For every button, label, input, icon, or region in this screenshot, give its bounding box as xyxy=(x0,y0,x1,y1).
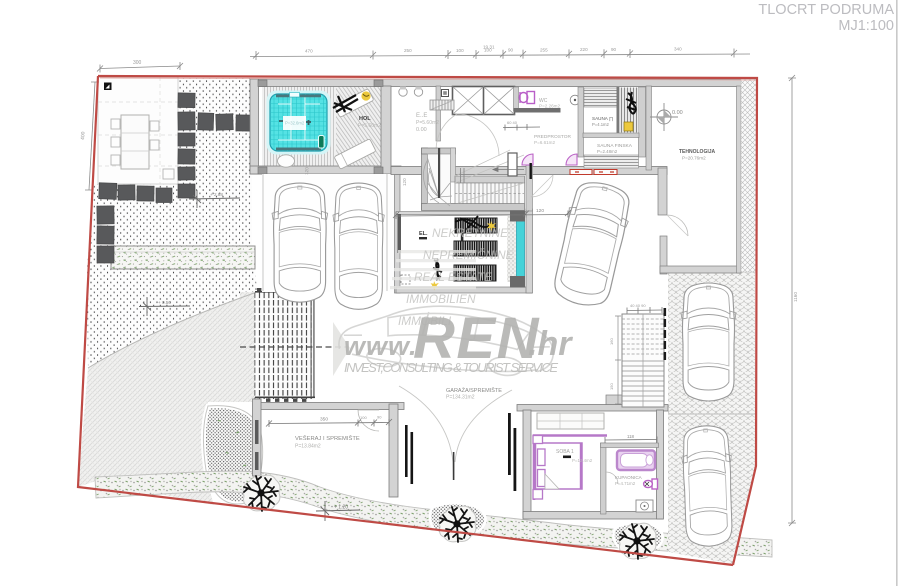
svg-text:TEHNOLOGIJA: TEHNOLOGIJA xyxy=(679,149,716,155)
svg-text:www.: www. xyxy=(344,331,418,361)
svg-text:KUPAONICA: KUPAONICA xyxy=(615,475,643,480)
svg-text:0.00: 0.00 xyxy=(672,110,683,116)
svg-text:150: 150 xyxy=(609,383,614,390)
svg-text:P=20.76m2: P=20.76m2 xyxy=(682,156,706,161)
svg-text:100: 100 xyxy=(360,415,367,420)
svg-text:REAL ESTATE: REAL ESTATE xyxy=(414,270,492,284)
svg-text:90: 90 xyxy=(508,48,514,53)
svg-text:P=5.60m2: P=5.60m2 xyxy=(416,120,439,126)
svg-text:P=4.1m2: P=4.1m2 xyxy=(592,122,610,127)
svg-text:P=13.84m2: P=13.84m2 xyxy=(295,444,321,450)
svg-text:90: 90 xyxy=(377,415,382,420)
svg-text:SOBA 1: SOBA 1 xyxy=(556,449,574,455)
svg-text:60 40: 60 40 xyxy=(507,120,518,125)
svg-text:40 40 90: 40 40 90 xyxy=(630,303,646,308)
svg-text:118: 118 xyxy=(627,434,635,439)
svg-text:470: 470 xyxy=(305,49,313,54)
svg-text:P=12.4m2: P=12.4m2 xyxy=(572,458,593,463)
svg-text:E..E: E..E xyxy=(416,113,427,119)
svg-text:120: 120 xyxy=(536,208,544,214)
svg-text:GARAŽA/SPREMIŠTE: GARAŽA/SPREMIŠTE xyxy=(446,386,502,394)
svg-text:120: 120 xyxy=(304,167,309,175)
svg-text:90: 90 xyxy=(611,47,617,52)
svg-text:0.00: 0.00 xyxy=(416,127,427,133)
svg-text:100: 100 xyxy=(456,48,464,53)
svg-text:P=6.61m2: P=6.61m2 xyxy=(534,140,556,145)
svg-text:EL.: EL. xyxy=(419,231,428,237)
svg-text:MJ1:100: MJ1:100 xyxy=(838,18,894,34)
svg-text:VEŠERAJ I SPREMIŠTE: VEŠERAJ I SPREMIŠTE xyxy=(295,435,360,442)
svg-text:.hr: .hr xyxy=(528,325,573,363)
svg-text:+ 1.20: + 1.20 xyxy=(334,505,348,511)
svg-text:300: 300 xyxy=(133,60,142,66)
svg-text:P=134.31m2: P=134.31m2 xyxy=(446,395,475,401)
svg-text:P=4.71m2: P=4.71m2 xyxy=(615,481,636,486)
svg-text:160: 160 xyxy=(609,338,614,345)
svg-text:P=2.26m2: P=2.26m2 xyxy=(539,104,561,109)
svg-text:TLOCRT PODRUMA: TLOCRT PODRUMA xyxy=(758,2,894,18)
svg-text:350: 350 xyxy=(320,417,328,423)
svg-text:NEPREMIČNINE: NEPREMIČNINE xyxy=(423,248,514,262)
svg-text:+ 0.50: + 0.50 xyxy=(158,300,171,305)
svg-text:1160: 1160 xyxy=(793,292,798,302)
svg-text:NEKRETNINE: NEKRETNINE xyxy=(432,226,508,240)
svg-text:255: 255 xyxy=(540,47,548,52)
svg-text:220: 220 xyxy=(580,47,588,52)
svg-text:IMMOBILIEN: IMMOBILIEN xyxy=(406,292,476,306)
svg-text:250: 250 xyxy=(404,48,412,53)
svg-text:340: 340 xyxy=(674,47,682,52)
svg-text:120: 120 xyxy=(402,178,407,186)
svg-text:+ 2.88: + 2.88 xyxy=(210,192,223,197)
svg-text:P=2.48m2: P=2.48m2 xyxy=(597,149,618,154)
svg-text:INVEST,CONSULTING & TOURIST SE: INVEST,CONSULTING & TOURIST SERVICE xyxy=(344,360,558,375)
svg-text:400: 400 xyxy=(80,131,87,140)
svg-text:100: 100 xyxy=(484,48,492,53)
svg-text:HOL: HOL xyxy=(359,116,371,122)
svg-text:P=5.60m2: P=5.60m2 xyxy=(358,123,381,129)
svg-text:P=32.6m2: P=32.6m2 xyxy=(285,121,305,126)
